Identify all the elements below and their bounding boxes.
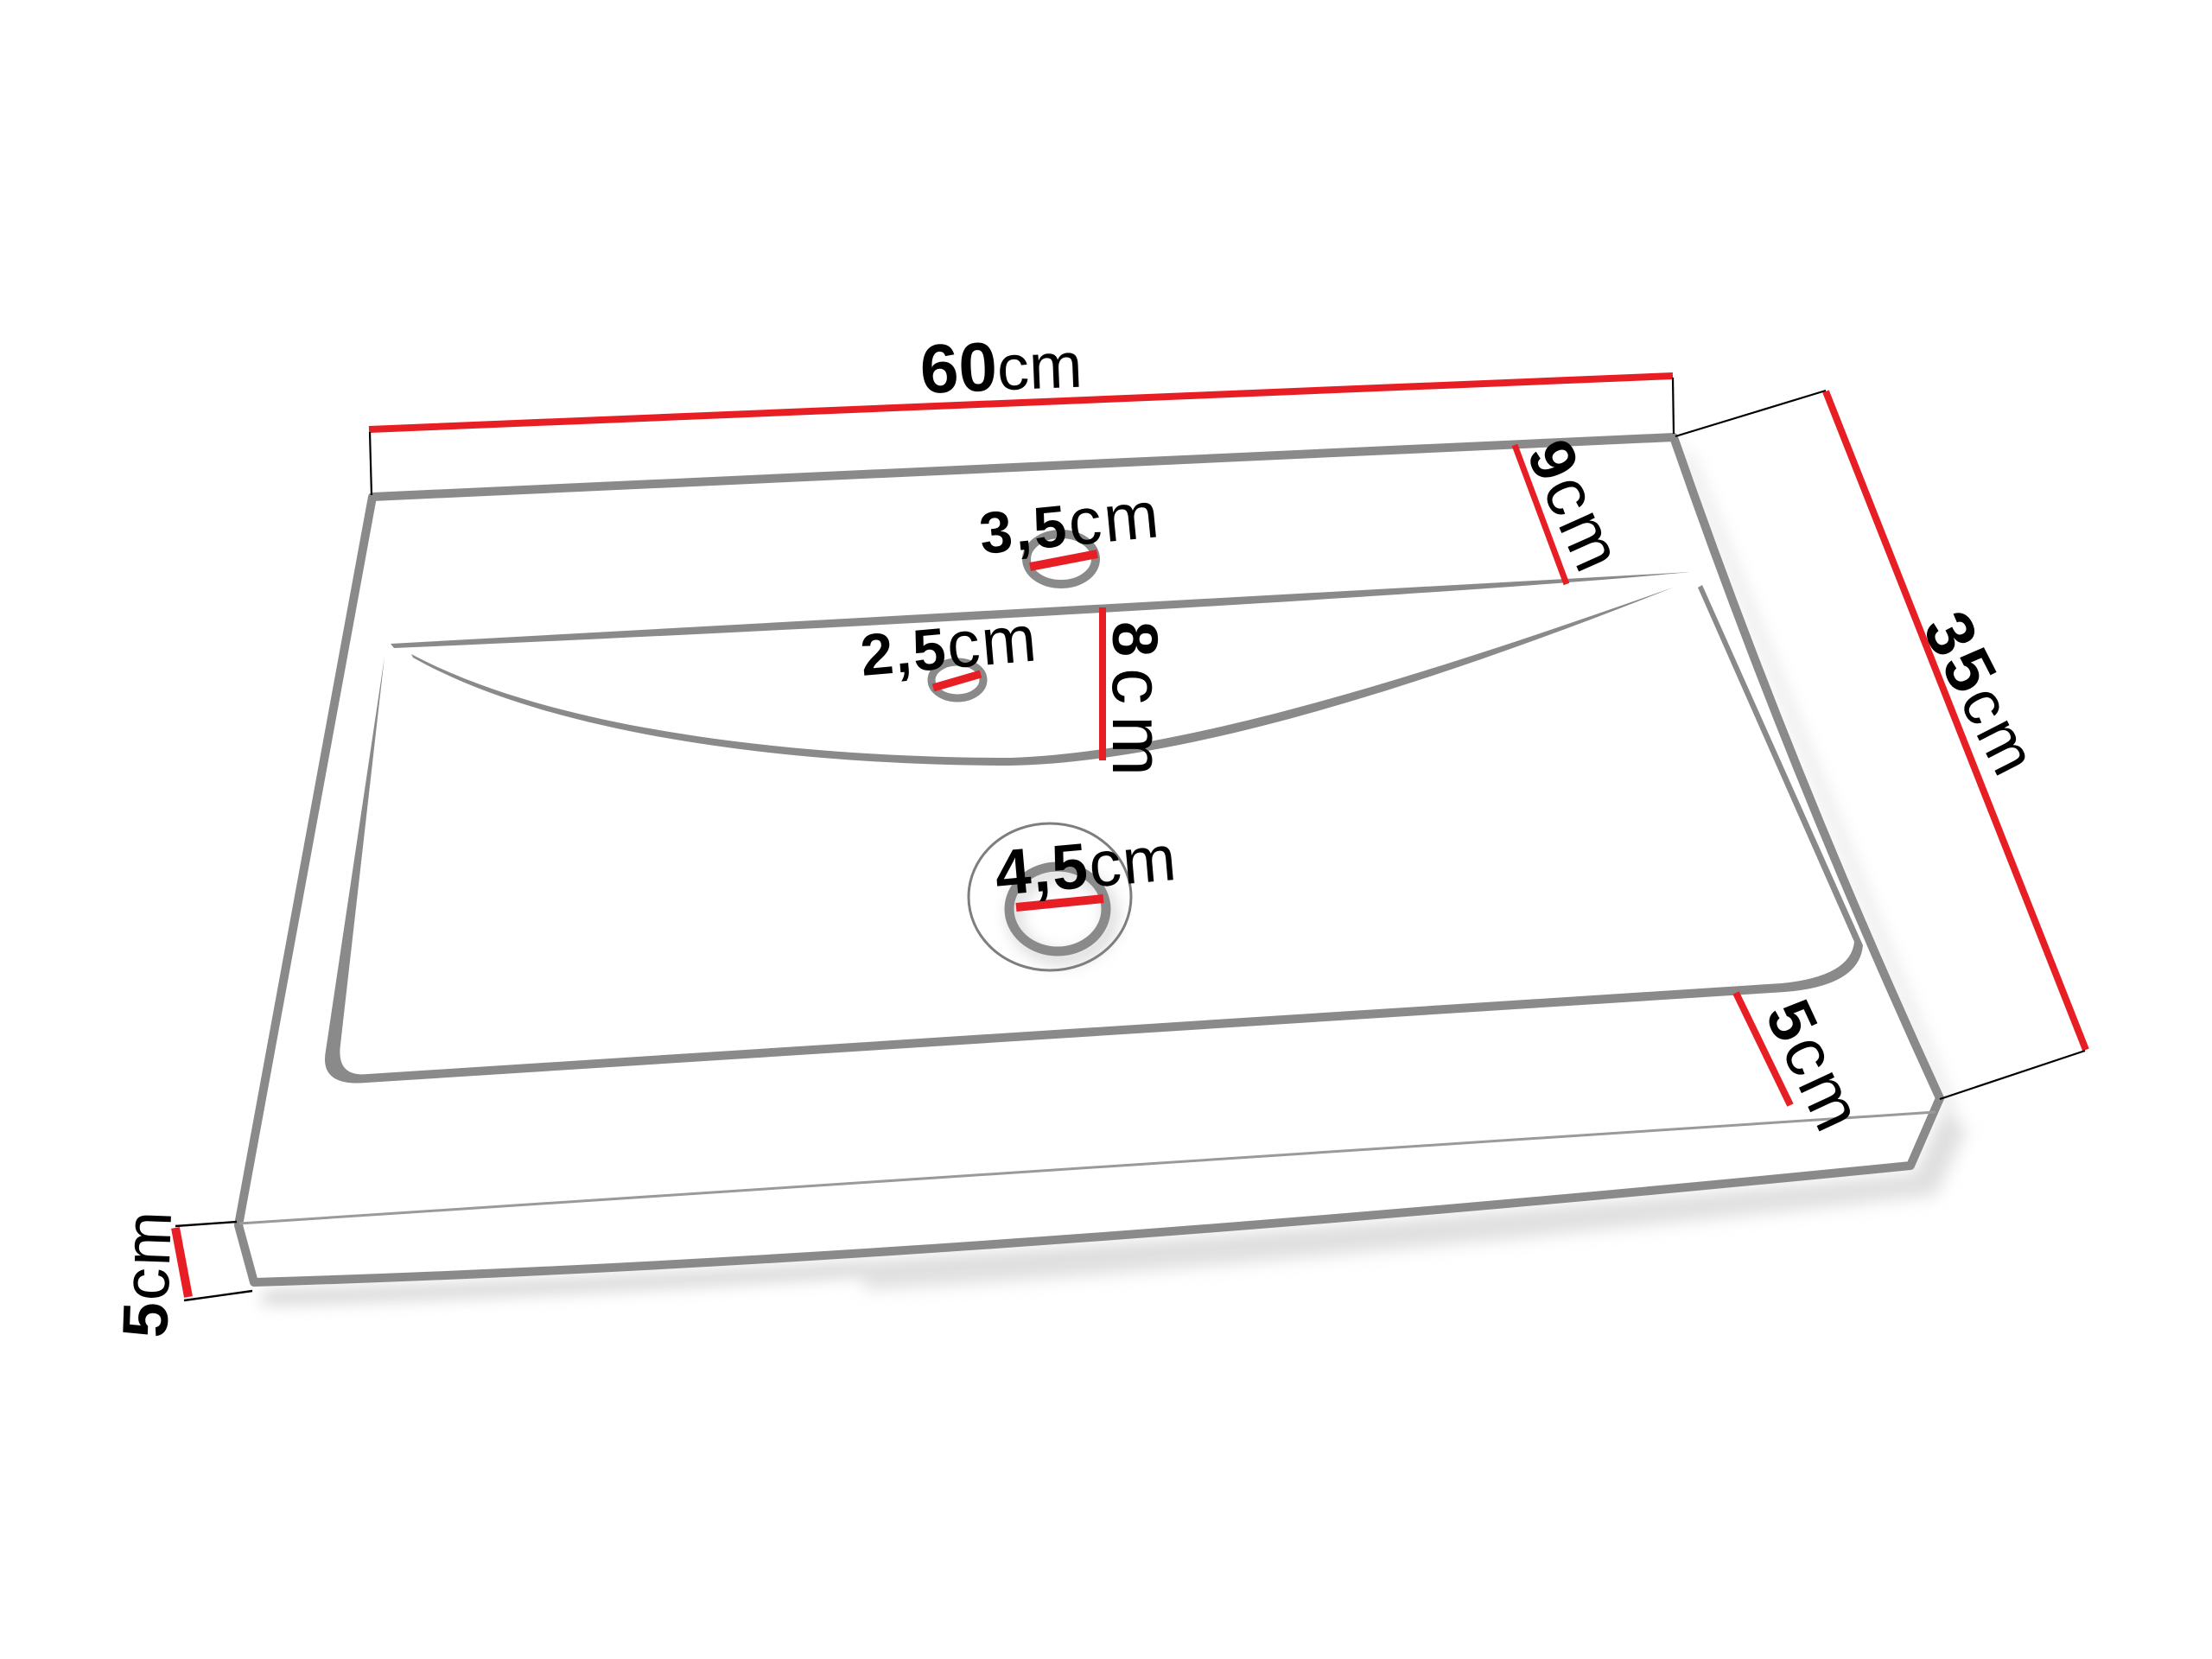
svg-text:8cm: 8cm bbox=[1097, 621, 1179, 787]
svg-text:35cm: 35cm bbox=[1909, 600, 2056, 789]
svg-text:5cm: 5cm bbox=[108, 1208, 186, 1338]
svg-text:60cm: 60cm bbox=[918, 325, 1084, 408]
